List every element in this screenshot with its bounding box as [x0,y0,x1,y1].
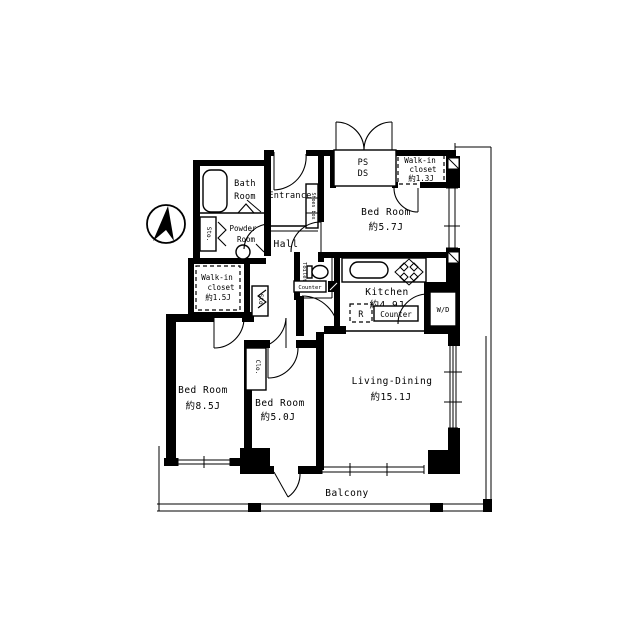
label-wd: W/D [437,306,450,314]
room-entrance: Entrance Shoes box [268,152,318,231]
label-toilet: Toilet [301,262,307,282]
label-ds: DS [358,169,369,179]
ps-ds-compartment: PS DS [334,122,396,186]
label-hall: Hall [274,239,299,250]
label-entrance: Entrance [268,191,311,201]
label-living-1: Living-Dining [352,376,433,387]
room-toilet: Toilet Counter [294,258,339,298]
window-living-right [444,344,462,428]
balcony-door [274,472,300,497]
label-bedroom50-1: Bed Room [255,398,305,409]
floor-plan-drawing: PS DS Walk-in closet 約1.3J Bath Room Pow… [0,0,640,640]
window-bedroom85 [178,456,230,468]
label-bedroom50-2: 約5.0J [261,411,296,423]
label-bedroom85-1: Bed Room [178,385,228,396]
room-kitchen: Kitchen 約4.9J R Counter [342,258,428,331]
room-powder: Powder Room Sto. [200,217,268,259]
label-powder-2: Room [237,235,256,244]
label-fridge: R [358,310,364,320]
label-wic13-3: 約1.3J [408,173,434,183]
label-living-2: 約15.1J [370,391,411,403]
label-counter-toilet: Counter [298,285,322,291]
north-arrow-icon [147,205,185,243]
label-powder-1: Powder [229,224,257,233]
label-wic15-2: closet [207,283,234,292]
label-sto-hall: Sto. [257,294,264,308]
label-balcony: Balcony [325,488,369,499]
label-bathroom-2: Room [234,192,256,202]
label-bedroom57-1: Bed Room [361,207,411,218]
label-bathroom-1: Bath [234,179,256,189]
room-bedroom-85: Bed Room 約8.5J [178,385,230,468]
floor-plan-page: PS DS Walk-in closet 約1.3J Bath Room Pow… [0,0,640,640]
vent-box-icon-top [448,158,459,169]
walk-in-closet-1-5: Walk-in closet 約1.5J [196,266,240,310]
washer-dryer: W/D [430,292,456,326]
window-living-bottom [322,463,424,476]
label-ps: PS [358,158,369,168]
label-bedroom57-2: 約5.7J [369,221,404,233]
room-bedroom-50: Clo. Bed Room 約5.0J [246,348,305,497]
label-counter-kitchen: Counter [380,310,412,319]
window-bedroom57 [444,188,460,248]
balcony-railing [157,499,492,512]
label-clo: Clo. [254,360,261,374]
label-wic15-3: 約1.5J [205,292,231,302]
vent-box-icon-mid [448,252,459,263]
label-shoes-box: Shoes box [310,192,316,219]
kitchen-sink-icon [350,262,388,278]
room-bathroom: Bath Room [200,170,264,213]
label-wic13-2: closet [409,165,436,174]
label-sto-powder: Sto. [205,227,212,241]
label-bedroom85-2: 約8.5J [186,400,221,412]
label-kitchen-1: Kitchen [365,287,409,298]
label-wic15-1: Walk-in [201,273,233,282]
label-wic13-1: Walk-in [404,156,436,165]
